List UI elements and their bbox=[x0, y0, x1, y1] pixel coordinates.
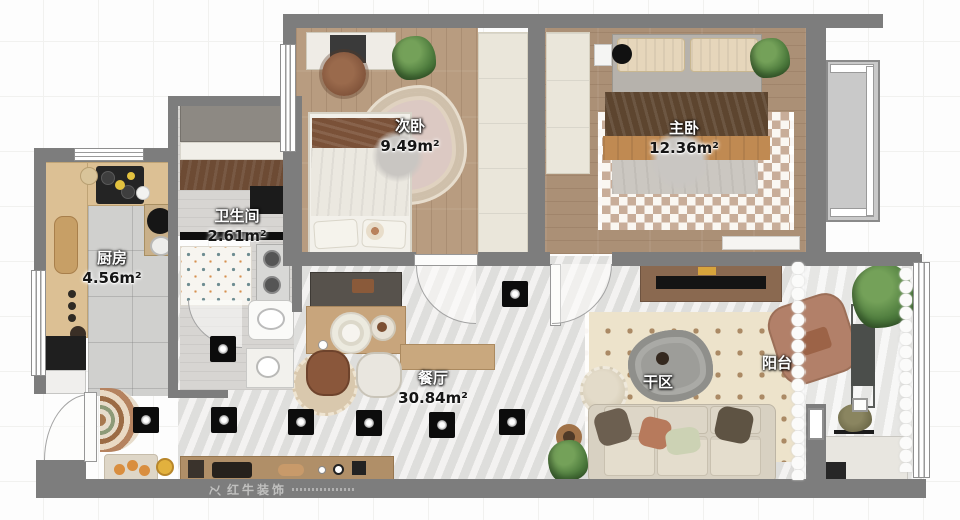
ceiling-light-icon bbox=[499, 409, 525, 435]
room-name: 卫生间 bbox=[207, 208, 266, 225]
room-label-balcony[interactable]: 阳台 bbox=[762, 355, 792, 372]
wall-bathroom-bottom-stub bbox=[168, 390, 228, 398]
floor-drain bbox=[852, 398, 868, 412]
ceiling-light-icon bbox=[210, 336, 236, 362]
pillow-flower-deco bbox=[366, 222, 384, 240]
jar bbox=[68, 290, 76, 298]
wall-master-right bbox=[806, 28, 826, 256]
room-area: 2.61m² bbox=[207, 228, 266, 245]
bedside-stool bbox=[612, 44, 632, 64]
secondary-wardrobe bbox=[478, 32, 528, 256]
dryer-drum bbox=[263, 276, 281, 294]
room-name: 厨房 bbox=[82, 250, 141, 267]
wall-secondary-bottom bbox=[283, 252, 416, 266]
kitchen-left-window bbox=[31, 270, 46, 376]
room-area: 30.84m² bbox=[398, 390, 468, 407]
wall-entry-corner bbox=[36, 460, 86, 498]
jar bbox=[68, 314, 76, 322]
watermark: 红牛装饰 bbox=[208, 481, 356, 498]
decor-item bbox=[352, 461, 366, 475]
floorplan-canvas: 次卧 9.49m² 主卧 12.36m² 卫生间 2.61m² 厨房 4.56m… bbox=[0, 0, 960, 520]
watermark-brand-text: 红牛装饰 bbox=[227, 481, 287, 498]
pot bbox=[136, 186, 150, 200]
bathroom-zone-bed-pillow bbox=[180, 142, 292, 160]
teacup bbox=[318, 340, 328, 350]
decor-tray bbox=[212, 462, 252, 478]
fridge bbox=[44, 336, 86, 370]
room-label-bathroom[interactable]: 卫生间 2.61m² bbox=[207, 208, 266, 246]
ceiling-light-icon bbox=[429, 412, 455, 438]
cutting-board bbox=[54, 216, 78, 274]
room-name: 次卧 bbox=[380, 118, 439, 135]
plant-by-sofa bbox=[548, 440, 588, 482]
room-name: 干区 bbox=[643, 374, 673, 391]
decor-orange bbox=[139, 465, 150, 476]
washer-drum bbox=[263, 250, 281, 268]
basket bbox=[80, 167, 98, 185]
bathroom-tile-floor bbox=[180, 246, 252, 306]
bedside-notepad bbox=[594, 44, 612, 66]
balcony-pass-opening bbox=[808, 408, 824, 440]
sheer-curtain bbox=[791, 262, 806, 480]
wash-basin bbox=[256, 356, 280, 378]
room-name: 主卧 bbox=[649, 120, 719, 137]
room-name: 餐厅 bbox=[398, 370, 468, 387]
wall-top bbox=[283, 14, 883, 28]
decor-item bbox=[188, 460, 204, 478]
kitchen-top-window bbox=[74, 148, 144, 161]
secondary-door-leaf bbox=[414, 254, 478, 266]
room-label-dry-area[interactable]: 干区 bbox=[643, 374, 673, 391]
room-area: 9.49m² bbox=[380, 138, 439, 155]
ceiling-light-icon bbox=[211, 407, 237, 433]
pillow bbox=[313, 218, 359, 249]
food-item bbox=[127, 172, 135, 180]
master-pillow bbox=[690, 38, 758, 72]
bathtub-basin bbox=[257, 308, 285, 330]
dining-bench bbox=[400, 344, 495, 370]
wall-master-bottom bbox=[612, 252, 920, 266]
master-low-shelf bbox=[722, 236, 800, 250]
bread-item bbox=[278, 464, 304, 476]
food-plate bbox=[377, 322, 387, 332]
sideboard-box bbox=[352, 279, 374, 293]
ceiling-light-icon bbox=[133, 407, 159, 433]
decor-orange bbox=[127, 460, 138, 471]
room-area: 4.56m² bbox=[82, 270, 141, 287]
tv-decor-book bbox=[698, 267, 716, 275]
ceiling-light-icon bbox=[356, 410, 382, 436]
burner bbox=[101, 171, 115, 185]
balcony-window bbox=[913, 262, 930, 478]
entrance-door-leaf bbox=[84, 392, 97, 462]
brand-logo-icon bbox=[208, 483, 222, 497]
wall-bedroom-divider bbox=[528, 28, 545, 254]
ceiling-light-icon bbox=[502, 281, 528, 307]
cup bbox=[333, 464, 344, 475]
room-area: 12.36m² bbox=[649, 140, 719, 157]
ceiling-light-icon bbox=[288, 409, 314, 435]
coffee-table-vase bbox=[656, 352, 669, 365]
room-label-master-bedroom[interactable]: 主卧 12.36m² bbox=[649, 120, 719, 158]
pendant-lamp bbox=[330, 312, 372, 354]
cup bbox=[318, 466, 326, 474]
secondary-bedroom-plant bbox=[392, 36, 436, 80]
wall-bathroom-left bbox=[168, 96, 178, 398]
bay-window-frame-right bbox=[866, 66, 874, 216]
tv bbox=[656, 276, 766, 289]
bathroom-zone-bed-head bbox=[180, 104, 292, 142]
secondary-bedroom-window bbox=[280, 44, 296, 152]
master-wardrobe bbox=[546, 32, 590, 174]
dining-chair-brown bbox=[306, 350, 350, 396]
decor-orange bbox=[114, 464, 125, 475]
desk-chair bbox=[322, 52, 366, 96]
master-bedroom-plant bbox=[750, 38, 790, 78]
watermark-tagline bbox=[292, 488, 356, 491]
balcony-curtain bbox=[899, 268, 912, 472]
room-label-secondary-bedroom[interactable]: 次卧 9.49m² bbox=[380, 118, 439, 156]
room-label-kitchen[interactable]: 厨房 4.56m² bbox=[82, 250, 141, 288]
room-name: 阳台 bbox=[762, 355, 792, 372]
kitchen-cabinet bbox=[44, 370, 86, 394]
jar bbox=[68, 302, 76, 310]
drying-rack bbox=[851, 324, 875, 386]
dining-chair-white bbox=[356, 352, 402, 398]
room-label-dining[interactable]: 餐厅 30.84m² bbox=[398, 370, 468, 408]
wall-hall-bottom bbox=[478, 252, 550, 266]
yellow-stool bbox=[156, 458, 174, 476]
food-item bbox=[115, 180, 125, 190]
